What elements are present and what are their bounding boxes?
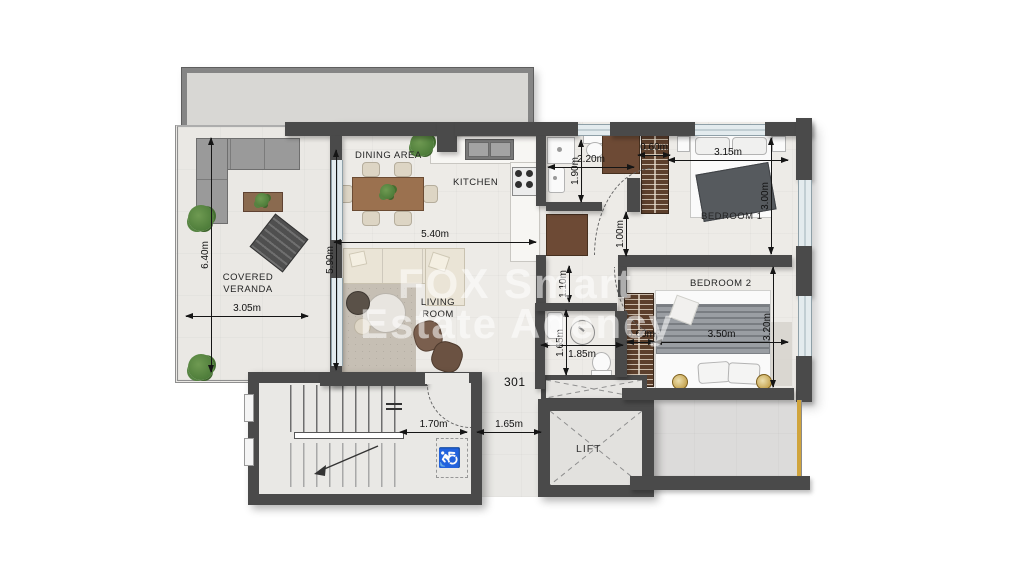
- stair-up-tick: [386, 408, 402, 410]
- dim-wardrobe1-width: 0.60m: [638, 155, 670, 156]
- wall-right: [796, 246, 812, 296]
- dim-veranda-height: 6.40m: [211, 138, 212, 372]
- dim-veranda-width: 3.05m: [186, 316, 308, 317]
- wall-balcony-south: [630, 476, 810, 490]
- dining-area-label: DINING AREA: [355, 150, 422, 162]
- living-room-label: LIVING ROOM: [410, 297, 466, 322]
- bedroom2-label: BEDROOM 2: [690, 278, 752, 290]
- kitchen-label: KITCHEN: [453, 177, 498, 189]
- wall-corridor-stub: [627, 178, 640, 212]
- kitchen-sink-basin: [490, 142, 511, 157]
- wall-wc-north: [535, 303, 617, 311]
- sink-drain: [553, 176, 557, 180]
- stair-window: [244, 394, 254, 422]
- window-bedroom2-east: [798, 296, 812, 356]
- apartment-number: 301: [504, 375, 526, 391]
- veranda-label: COVERED VERANDA: [200, 272, 296, 297]
- sliding-door-veranda: [331, 278, 343, 366]
- dim-bedroom1-height: 3.00m: [771, 138, 772, 254]
- coffee-table-round: [366, 293, 406, 333]
- wall-top: [455, 122, 578, 136]
- wall-right: [796, 356, 812, 402]
- dim-bedroom2-width: 3.50m: [655, 342, 788, 343]
- stove-burner: [526, 170, 533, 177]
- sliding-door-veranda: [331, 160, 343, 240]
- wall-hall-west: [536, 255, 546, 303]
- balcony-railing: [797, 400, 802, 476]
- dim-hall-width: 1.10m: [569, 266, 570, 302]
- dim-wardrobe2-width: 0.60m: [627, 342, 655, 343]
- wall-bedroom2-south: [622, 388, 794, 400]
- lift-label: LIFT: [576, 443, 602, 457]
- wall-bedroom2-west: [618, 267, 627, 297]
- dining-chair: [394, 162, 412, 177]
- washing-machine: [570, 320, 595, 345]
- window-bedroom1-east: [798, 180, 812, 246]
- living-label-line2: ROOM: [422, 309, 454, 320]
- dim-bathroom1-height: 1.90m: [581, 140, 582, 202]
- floor-plan-page: { "apartment": { "number": "301" }, "wat…: [0, 0, 1024, 576]
- stair-handrail: [294, 432, 404, 439]
- ottoman: [346, 291, 370, 315]
- wall-column-dining: [437, 122, 457, 152]
- dining-chair: [362, 211, 380, 226]
- wall-right: [796, 118, 812, 180]
- veranda-label-line1: COVERED: [223, 272, 273, 283]
- dim-stair-landing-width: 1.70m: [400, 432, 467, 433]
- bed2-pillow: [697, 361, 730, 384]
- balcony-floor: [652, 400, 800, 476]
- pouf: [354, 318, 371, 335]
- window-bathroom1: [578, 124, 610, 136]
- stair-door-opening: [425, 373, 469, 384]
- dim-bathroom1-width: 2.20m: [548, 167, 634, 168]
- floor-plan: ♿ LIFT: [0, 0, 1024, 576]
- entry-hall-floor: [479, 372, 539, 497]
- wall-bedroom-divider: [618, 255, 792, 267]
- wall-living-bottom: [320, 372, 427, 386]
- stair-window: [244, 438, 254, 466]
- bedroom1-label: BEDROOM 1: [701, 211, 763, 223]
- window-bedroom1: [695, 124, 765, 136]
- wall-top: [610, 122, 695, 136]
- dim-bedroom1-width: 3.15m: [668, 160, 788, 161]
- stove-burner: [515, 181, 522, 188]
- dim-living-width: 5.40m: [334, 242, 536, 243]
- wheelchair-icon: ♿: [438, 446, 462, 470]
- wall-top: [285, 122, 437, 136]
- shower-drain: [557, 147, 562, 152]
- dim-wc-width: 1.85m: [541, 345, 623, 346]
- wall-bathroom1-south: [546, 202, 602, 211]
- dining-chair: [423, 185, 438, 203]
- potted-plant: [255, 193, 269, 207]
- nightstand: [677, 136, 690, 152]
- dim-wc-height: 1.65m: [566, 310, 567, 375]
- nightstand: [772, 136, 786, 152]
- kitchen-sink-basin: [468, 142, 489, 157]
- stove-burner: [515, 170, 522, 177]
- dim-corridor-width: 1.00m: [626, 212, 627, 256]
- stair-up-tick: [386, 403, 402, 405]
- dining-chair: [394, 211, 412, 226]
- stair-direction-arrow: [300, 440, 390, 480]
- dim-entry-lobby-width: 1.65m: [477, 432, 541, 433]
- dim-bedroom2-height: 3.20m: [773, 267, 774, 387]
- living-label-line1: LIVING: [421, 297, 455, 308]
- hall-cabinet: [546, 214, 588, 256]
- bathroom-sink: [548, 167, 565, 193]
- dining-chair: [362, 162, 380, 177]
- dim-living-height: 5.90m: [336, 150, 337, 370]
- stove-burner: [526, 181, 533, 188]
- veranda-label-line2: VERANDA: [223, 284, 272, 295]
- wall-bathroom1-west: [536, 136, 546, 206]
- table-plant: [380, 184, 395, 199]
